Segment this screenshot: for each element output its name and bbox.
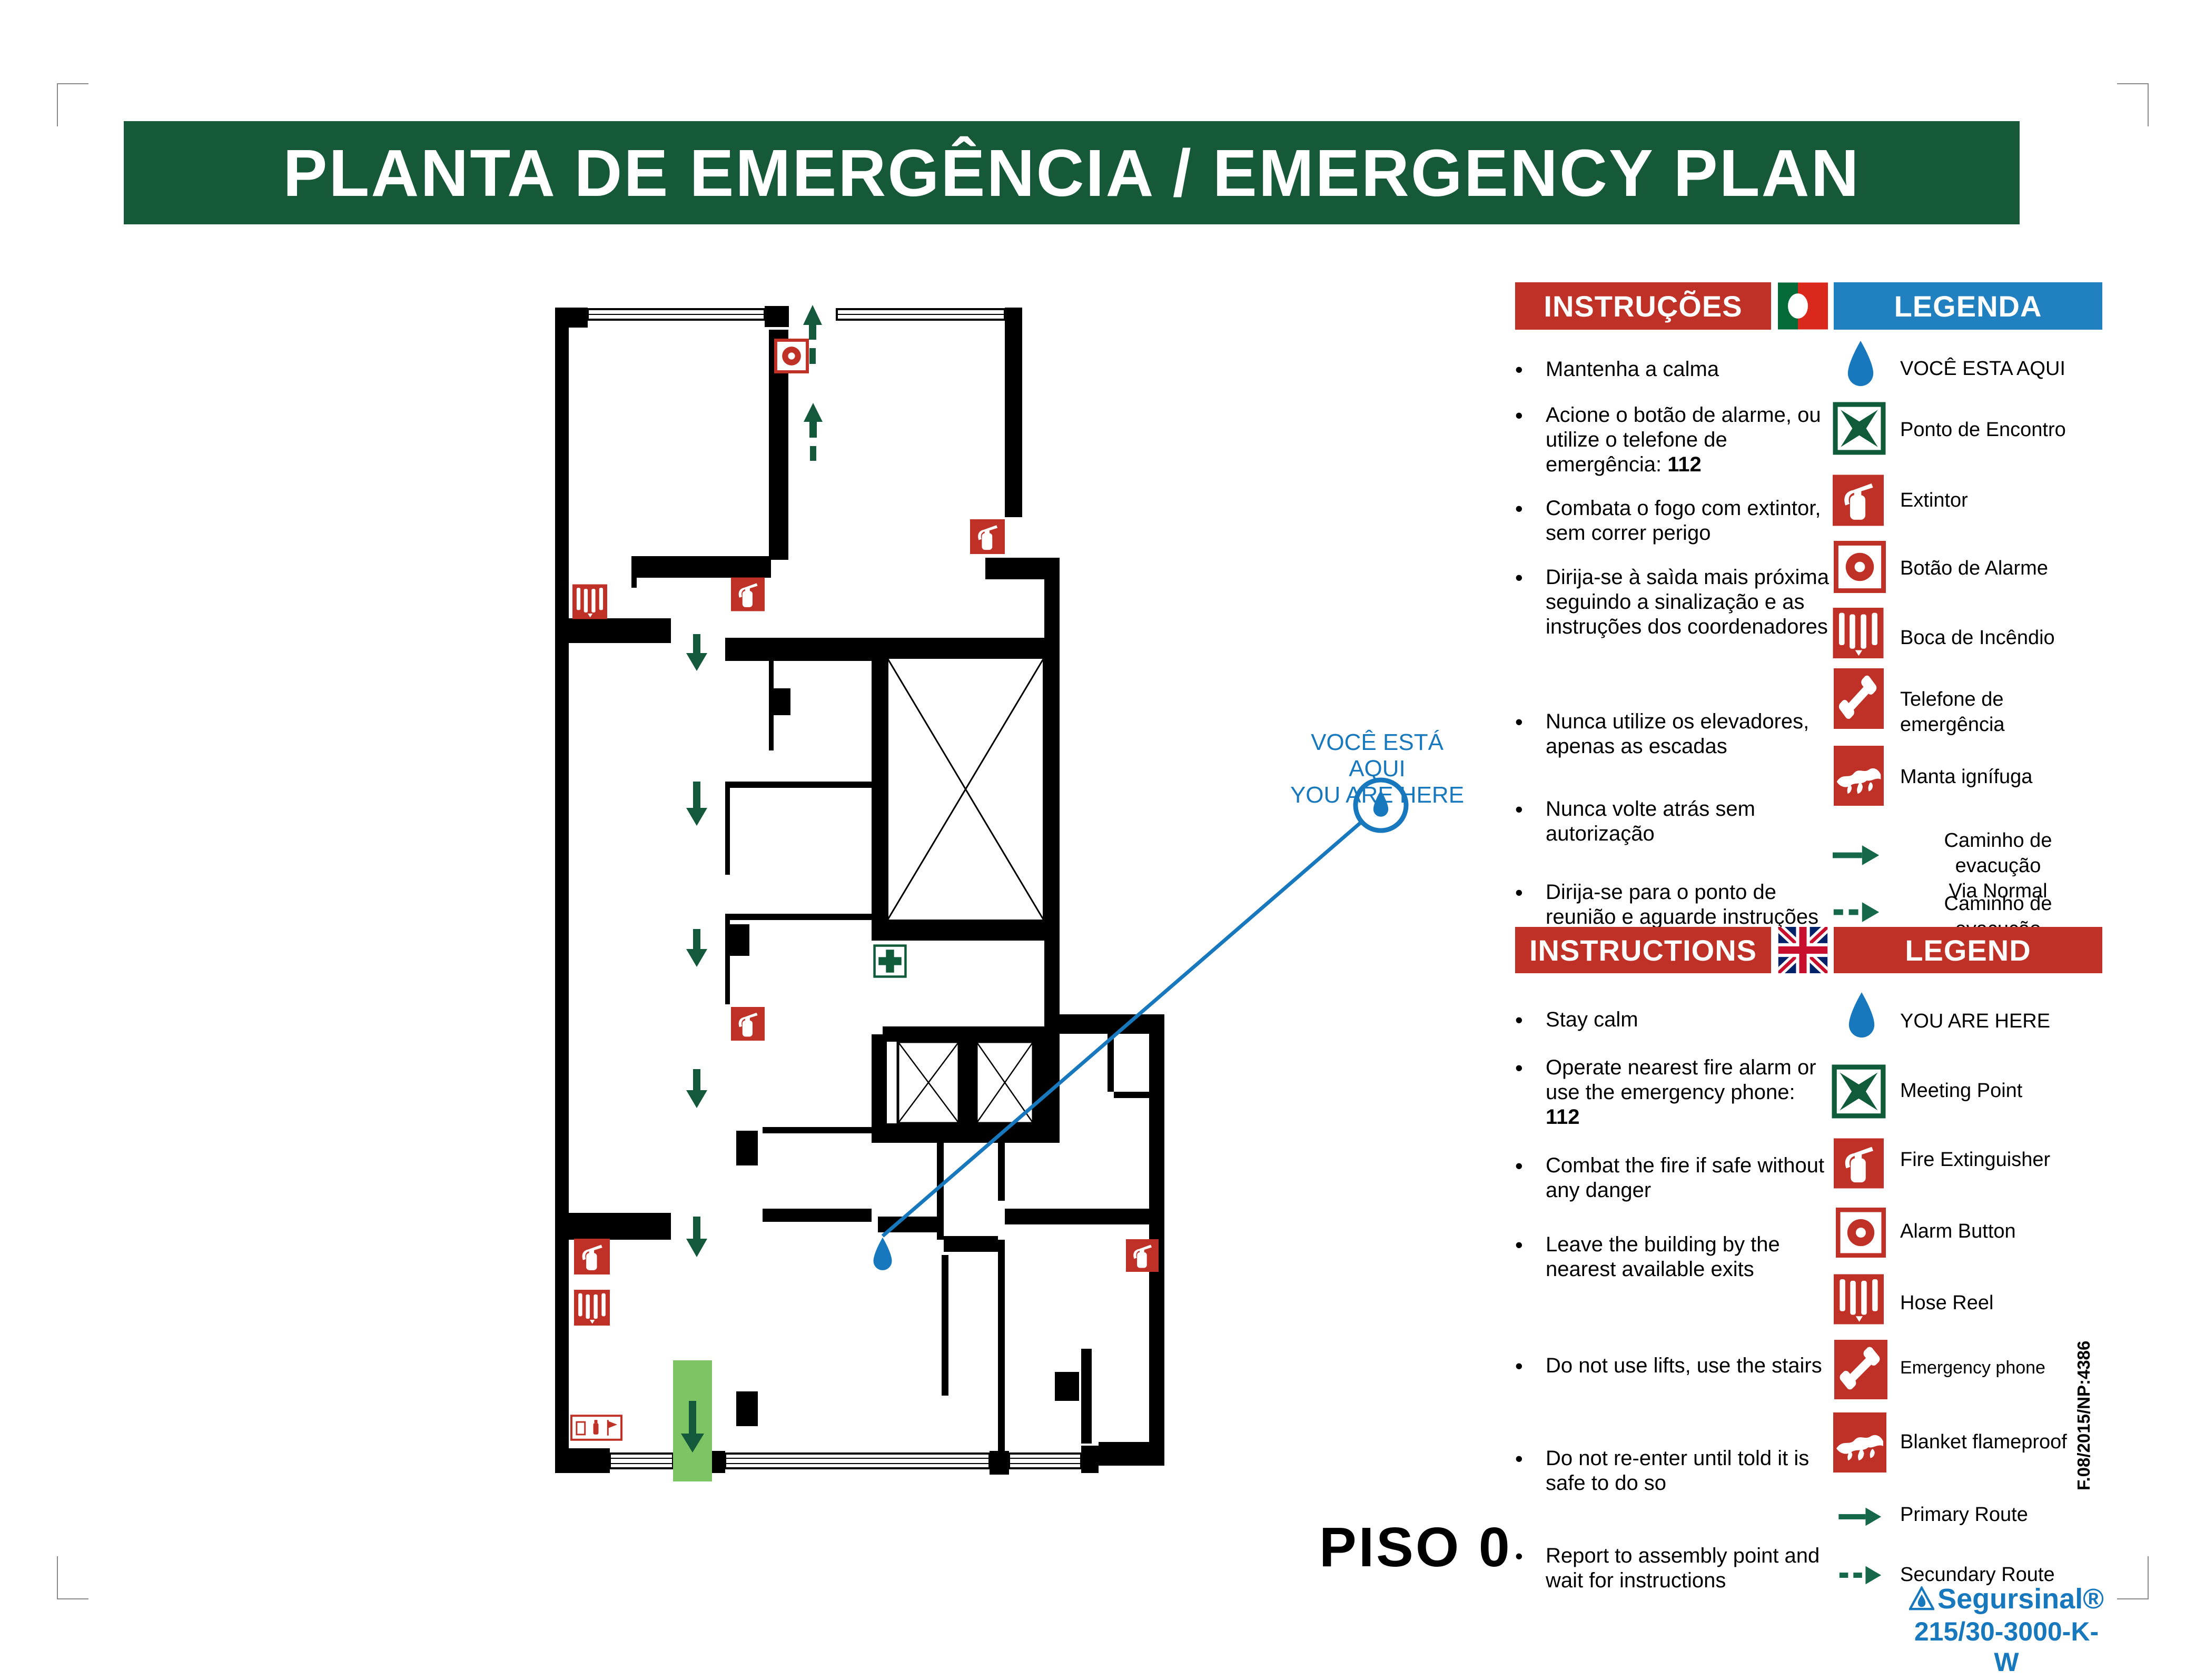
legend-label: Botão de Alarme <box>1900 556 2101 581</box>
fire-blanket-icon <box>1834 746 1884 806</box>
legend-label: Alarm Button <box>1900 1219 2101 1244</box>
brand-name: Segursinal® <box>1937 1583 2104 1615</box>
pt-instruction-item: •Acione o botão de alarme, ou utilize o … <box>1515 403 1836 477</box>
you-are-here-drop-icon <box>874 1238 892 1270</box>
pt-instruction-item: •Dirija-se à saìda mais próxima seguindo… <box>1515 565 1836 639</box>
shaft-lift-right <box>976 1042 1033 1123</box>
pt-instruction-item: •Nunca utilize os elevadores, apenas as … <box>1515 709 1836 759</box>
legend-label: Fire Extinguisher <box>1900 1147 2101 1172</box>
brand-block: Segursinal® 215/30-3000-K-W <box>1906 1583 2107 1677</box>
legend-label: Boca de Incêndio <box>1900 625 2101 650</box>
window-bands <box>588 309 1081 1468</box>
you-are-here-callout: VOCÊ ESTÁ AQUI YOU ARE HERE <box>1282 729 1472 808</box>
floor-label: PISO 0 <box>1319 1516 1512 1579</box>
pt-instruction-item: •Combata o fogo com extintor, sem correr… <box>1515 496 1836 546</box>
legend-label: Manta ignífuga <box>1900 764 2101 789</box>
pt-instruction-item: •Nunca volte atrás sem autorização <box>1515 797 1836 846</box>
emergency-phone-icon <box>1834 1340 1887 1399</box>
fire-extinguisher-icon <box>574 1239 610 1274</box>
hose-reel-icon <box>1833 608 1884 658</box>
legend-label: Hose Reel <box>1900 1290 2101 1316</box>
portugal-flag-icon <box>1778 282 1828 330</box>
legend-label: Extintor <box>1900 488 2101 513</box>
hose-reel-icon <box>1834 1273 1884 1326</box>
fire-extinguisher-icon <box>1833 472 1884 528</box>
pt-instruction-item: •Mantenha a calma <box>1515 357 1836 382</box>
walls <box>555 306 1164 1475</box>
fire-extinguisher-icon <box>1126 1239 1159 1272</box>
legend-label: Primary Route <box>1900 1502 2101 1527</box>
document-code: F.08/2015/NP:4386 <box>2074 1327 2094 1490</box>
title-banner: PLANTA DE EMERGÊNCIA / EMERGENCY PLAN <box>124 121 2020 224</box>
emergency-plan-poster: { "page": { "title": "PLANTA DE EMERGÊNC… <box>0 0 2205 1680</box>
legend-label: YOU ARE HERE <box>1900 1009 2101 1034</box>
product-code: 215/30-3000-K-W <box>1906 1616 2107 1677</box>
legend-label: Blanket flameproof <box>1900 1429 2101 1455</box>
corner-mark-top-left <box>57 83 88 126</box>
alarm-button-icon <box>774 339 809 373</box>
shaft-elevator <box>887 657 1044 921</box>
en-instruction-item: •Operate nearest fire alarm or use the e… <box>1515 1055 1836 1130</box>
brand-flame-icon <box>1909 1586 1934 1612</box>
hose-reel-icon <box>572 585 607 619</box>
legend-label: Emergency phone <box>1900 1355 2101 1380</box>
pt-instructions-header: INSTRUÇÕES <box>1515 282 1771 330</box>
alarm-button-icon <box>1834 541 1886 593</box>
hose-reel-icon <box>574 1290 610 1326</box>
shaft-lift-left <box>898 1042 959 1123</box>
fire-equipment-sign-icon <box>571 1416 621 1440</box>
fire-extinguisher-icon <box>731 1007 765 1041</box>
secondary-route-arrow-icon <box>1833 900 1880 925</box>
legend-label: VOCÊ ESTA AQUI <box>1900 356 2101 381</box>
pt-legend-header: LEGENDA <box>1834 282 2102 330</box>
en-legend-header: LEGEND <box>1834 927 2102 973</box>
corner-mark-bottom-left <box>57 1556 88 1599</box>
fire-extinguisher-icon <box>731 578 765 611</box>
legend-label: Meeting Point <box>1900 1078 2101 1103</box>
exit-strip <box>673 1360 712 1481</box>
corner-mark-top-right <box>2117 83 2149 126</box>
legend-label: Ponto de Encontro <box>1900 417 2101 442</box>
legend-label: Telefone de emergência <box>1900 687 2101 737</box>
en-instruction-item: •Leave the building by the nearest avail… <box>1515 1232 1836 1282</box>
page-title: PLANTA DE EMERGÊNCIA / EMERGENCY PLAN <box>283 135 1860 211</box>
route-arrows <box>681 305 823 1452</box>
secondary-route-arrow-icon <box>1834 1565 1886 1585</box>
emergency-phone-icon <box>1834 668 1884 729</box>
en-instruction-item: •Report to assembly point and wait for i… <box>1515 1544 1836 1593</box>
fire-blanket-icon <box>1833 1412 1886 1473</box>
first-aid-icon <box>875 946 906 977</box>
en-instruction-item: •Combat the fire if safe without any dan… <box>1515 1153 1836 1203</box>
en-instruction-item: •Do not use lifts, use the stairs <box>1515 1353 1836 1378</box>
you-are-here-drop-icon <box>1845 337 1876 392</box>
uk-flag-icon <box>1778 927 1828 973</box>
you-are-here-drop-icon <box>1846 988 1877 1044</box>
primary-route-arrow-icon <box>1834 1507 1886 1527</box>
en-instruction-item: •Stay calm <box>1515 1007 1836 1032</box>
meeting-point-icon <box>1832 1064 1886 1119</box>
fire-extinguisher-icon <box>970 519 1005 554</box>
meeting-point-icon <box>1833 401 1886 456</box>
en-instructions-header: INSTRUCTIONS <box>1515 927 1771 973</box>
fire-extinguisher-icon <box>1834 1136 1884 1191</box>
floor-plan <box>548 303 1548 1493</box>
callout-line <box>883 822 1362 1236</box>
corner-mark-bottom-right <box>2117 1556 2149 1599</box>
pt-instruction-item: •Dirija-se para o ponto de reunião e agu… <box>1515 880 1836 930</box>
alarm-button-icon <box>1835 1208 1887 1258</box>
primary-route-arrow-icon <box>1833 843 1880 868</box>
en-instruction-item: •Do not re-enter until told it is safe t… <box>1515 1446 1836 1496</box>
